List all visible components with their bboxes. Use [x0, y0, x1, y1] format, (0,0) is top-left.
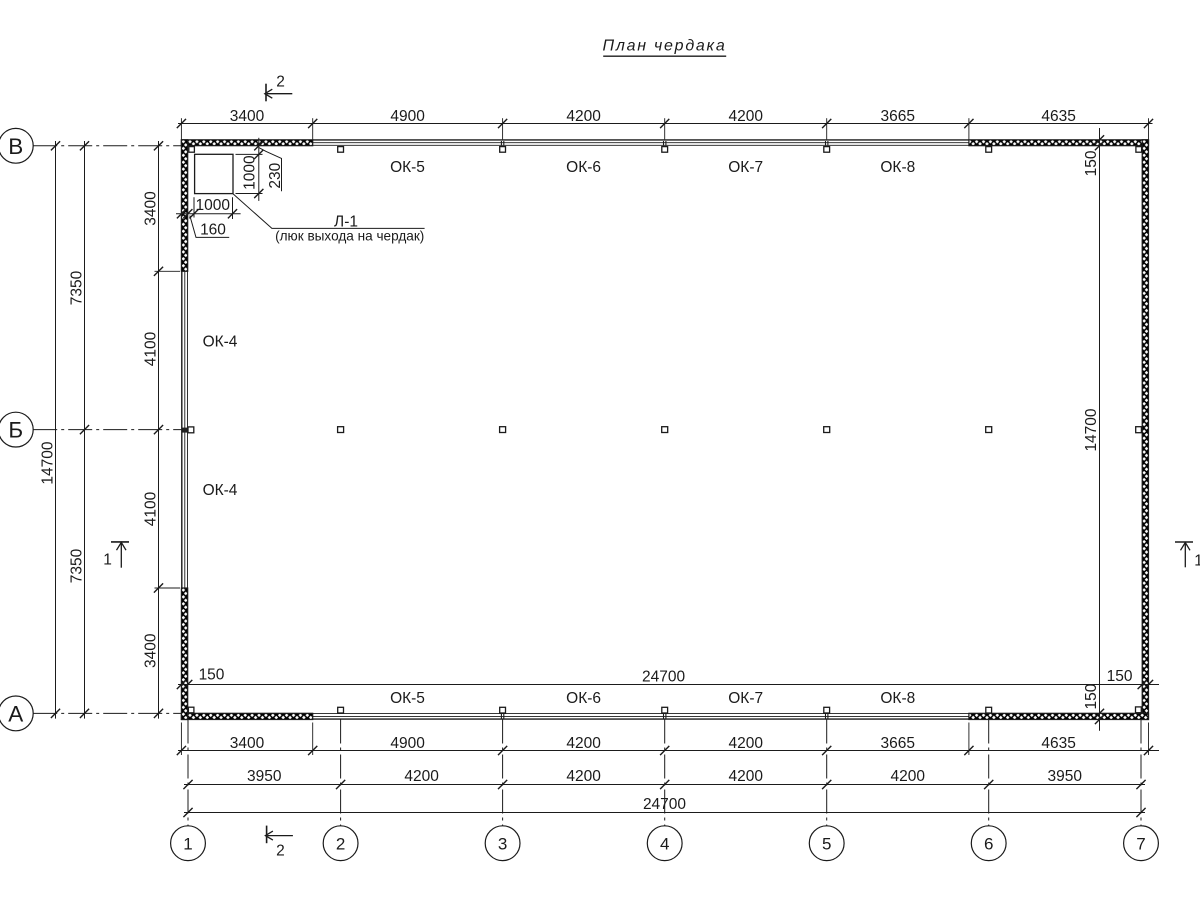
svg-text:Б: Б: [8, 418, 23, 443]
svg-text:14700: 14700: [1083, 408, 1100, 451]
svg-text:ОК-5: ОК-5: [390, 690, 425, 707]
svg-text:3400: 3400: [142, 633, 159, 668]
svg-text:160: 160: [200, 221, 226, 238]
svg-text:3400: 3400: [142, 191, 159, 226]
svg-text:4200: 4200: [404, 768, 439, 785]
svg-text:(люк выхода на чердак): (люк выхода на чердак): [275, 229, 424, 244]
svg-text:6: 6: [984, 835, 993, 854]
svg-text:3400: 3400: [230, 735, 265, 752]
svg-text:3665: 3665: [881, 735, 915, 752]
svg-text:4200: 4200: [728, 108, 763, 125]
svg-text:4635: 4635: [1041, 735, 1075, 752]
svg-text:ОК-7: ОК-7: [728, 690, 763, 707]
svg-text:ОК-6: ОК-6: [566, 159, 601, 176]
svg-text:3: 3: [498, 835, 507, 854]
svg-text:2: 2: [336, 835, 345, 854]
svg-text:3665: 3665: [881, 108, 915, 125]
svg-text:В: В: [8, 134, 23, 159]
svg-text:4635: 4635: [1041, 108, 1075, 125]
svg-text:1: 1: [1194, 553, 1200, 570]
svg-text:ОК-7: ОК-7: [728, 159, 763, 176]
svg-text:3950: 3950: [247, 768, 282, 785]
svg-text:1: 1: [103, 552, 112, 569]
svg-text:4200: 4200: [566, 768, 601, 785]
svg-text:150: 150: [1083, 150, 1100, 176]
svg-text:7: 7: [1136, 835, 1145, 854]
svg-text:ОК-6: ОК-6: [566, 690, 601, 707]
svg-text:3400: 3400: [230, 108, 265, 125]
svg-text:2: 2: [276, 73, 285, 90]
svg-text:4200: 4200: [728, 768, 763, 785]
svg-text:1000: 1000: [195, 197, 230, 214]
svg-text:4100: 4100: [142, 331, 159, 366]
svg-text:7350: 7350: [68, 270, 85, 305]
svg-text:4200: 4200: [890, 768, 925, 785]
svg-text:14700: 14700: [40, 441, 57, 484]
svg-text:4900: 4900: [390, 108, 425, 125]
svg-text:План чердака: План чердака: [602, 38, 726, 55]
svg-text:3950: 3950: [1048, 768, 1083, 785]
svg-text:4200: 4200: [728, 735, 763, 752]
svg-text:ОК-4: ОК-4: [203, 333, 238, 350]
svg-text:ОК-5: ОК-5: [390, 159, 425, 176]
svg-text:150: 150: [1083, 683, 1100, 709]
svg-text:1: 1: [183, 835, 192, 854]
svg-text:4100: 4100: [142, 491, 159, 526]
svg-text:2: 2: [276, 842, 285, 859]
svg-text:ОК-8: ОК-8: [880, 690, 915, 707]
svg-text:1000: 1000: [242, 155, 259, 190]
svg-text:7350: 7350: [68, 548, 85, 583]
svg-text:4: 4: [660, 835, 669, 854]
svg-text:150: 150: [1107, 668, 1133, 685]
svg-text:4900: 4900: [390, 735, 425, 752]
svg-text:24700: 24700: [642, 668, 685, 685]
svg-text:4200: 4200: [566, 108, 601, 125]
svg-text:ОК-8: ОК-8: [880, 159, 915, 176]
svg-text:230: 230: [267, 162, 284, 188]
svg-text:150: 150: [199, 666, 225, 683]
svg-text:5: 5: [822, 835, 831, 854]
svg-text:А: А: [8, 702, 23, 727]
svg-text:4200: 4200: [566, 735, 601, 752]
svg-text:ОК-4: ОК-4: [203, 482, 238, 499]
